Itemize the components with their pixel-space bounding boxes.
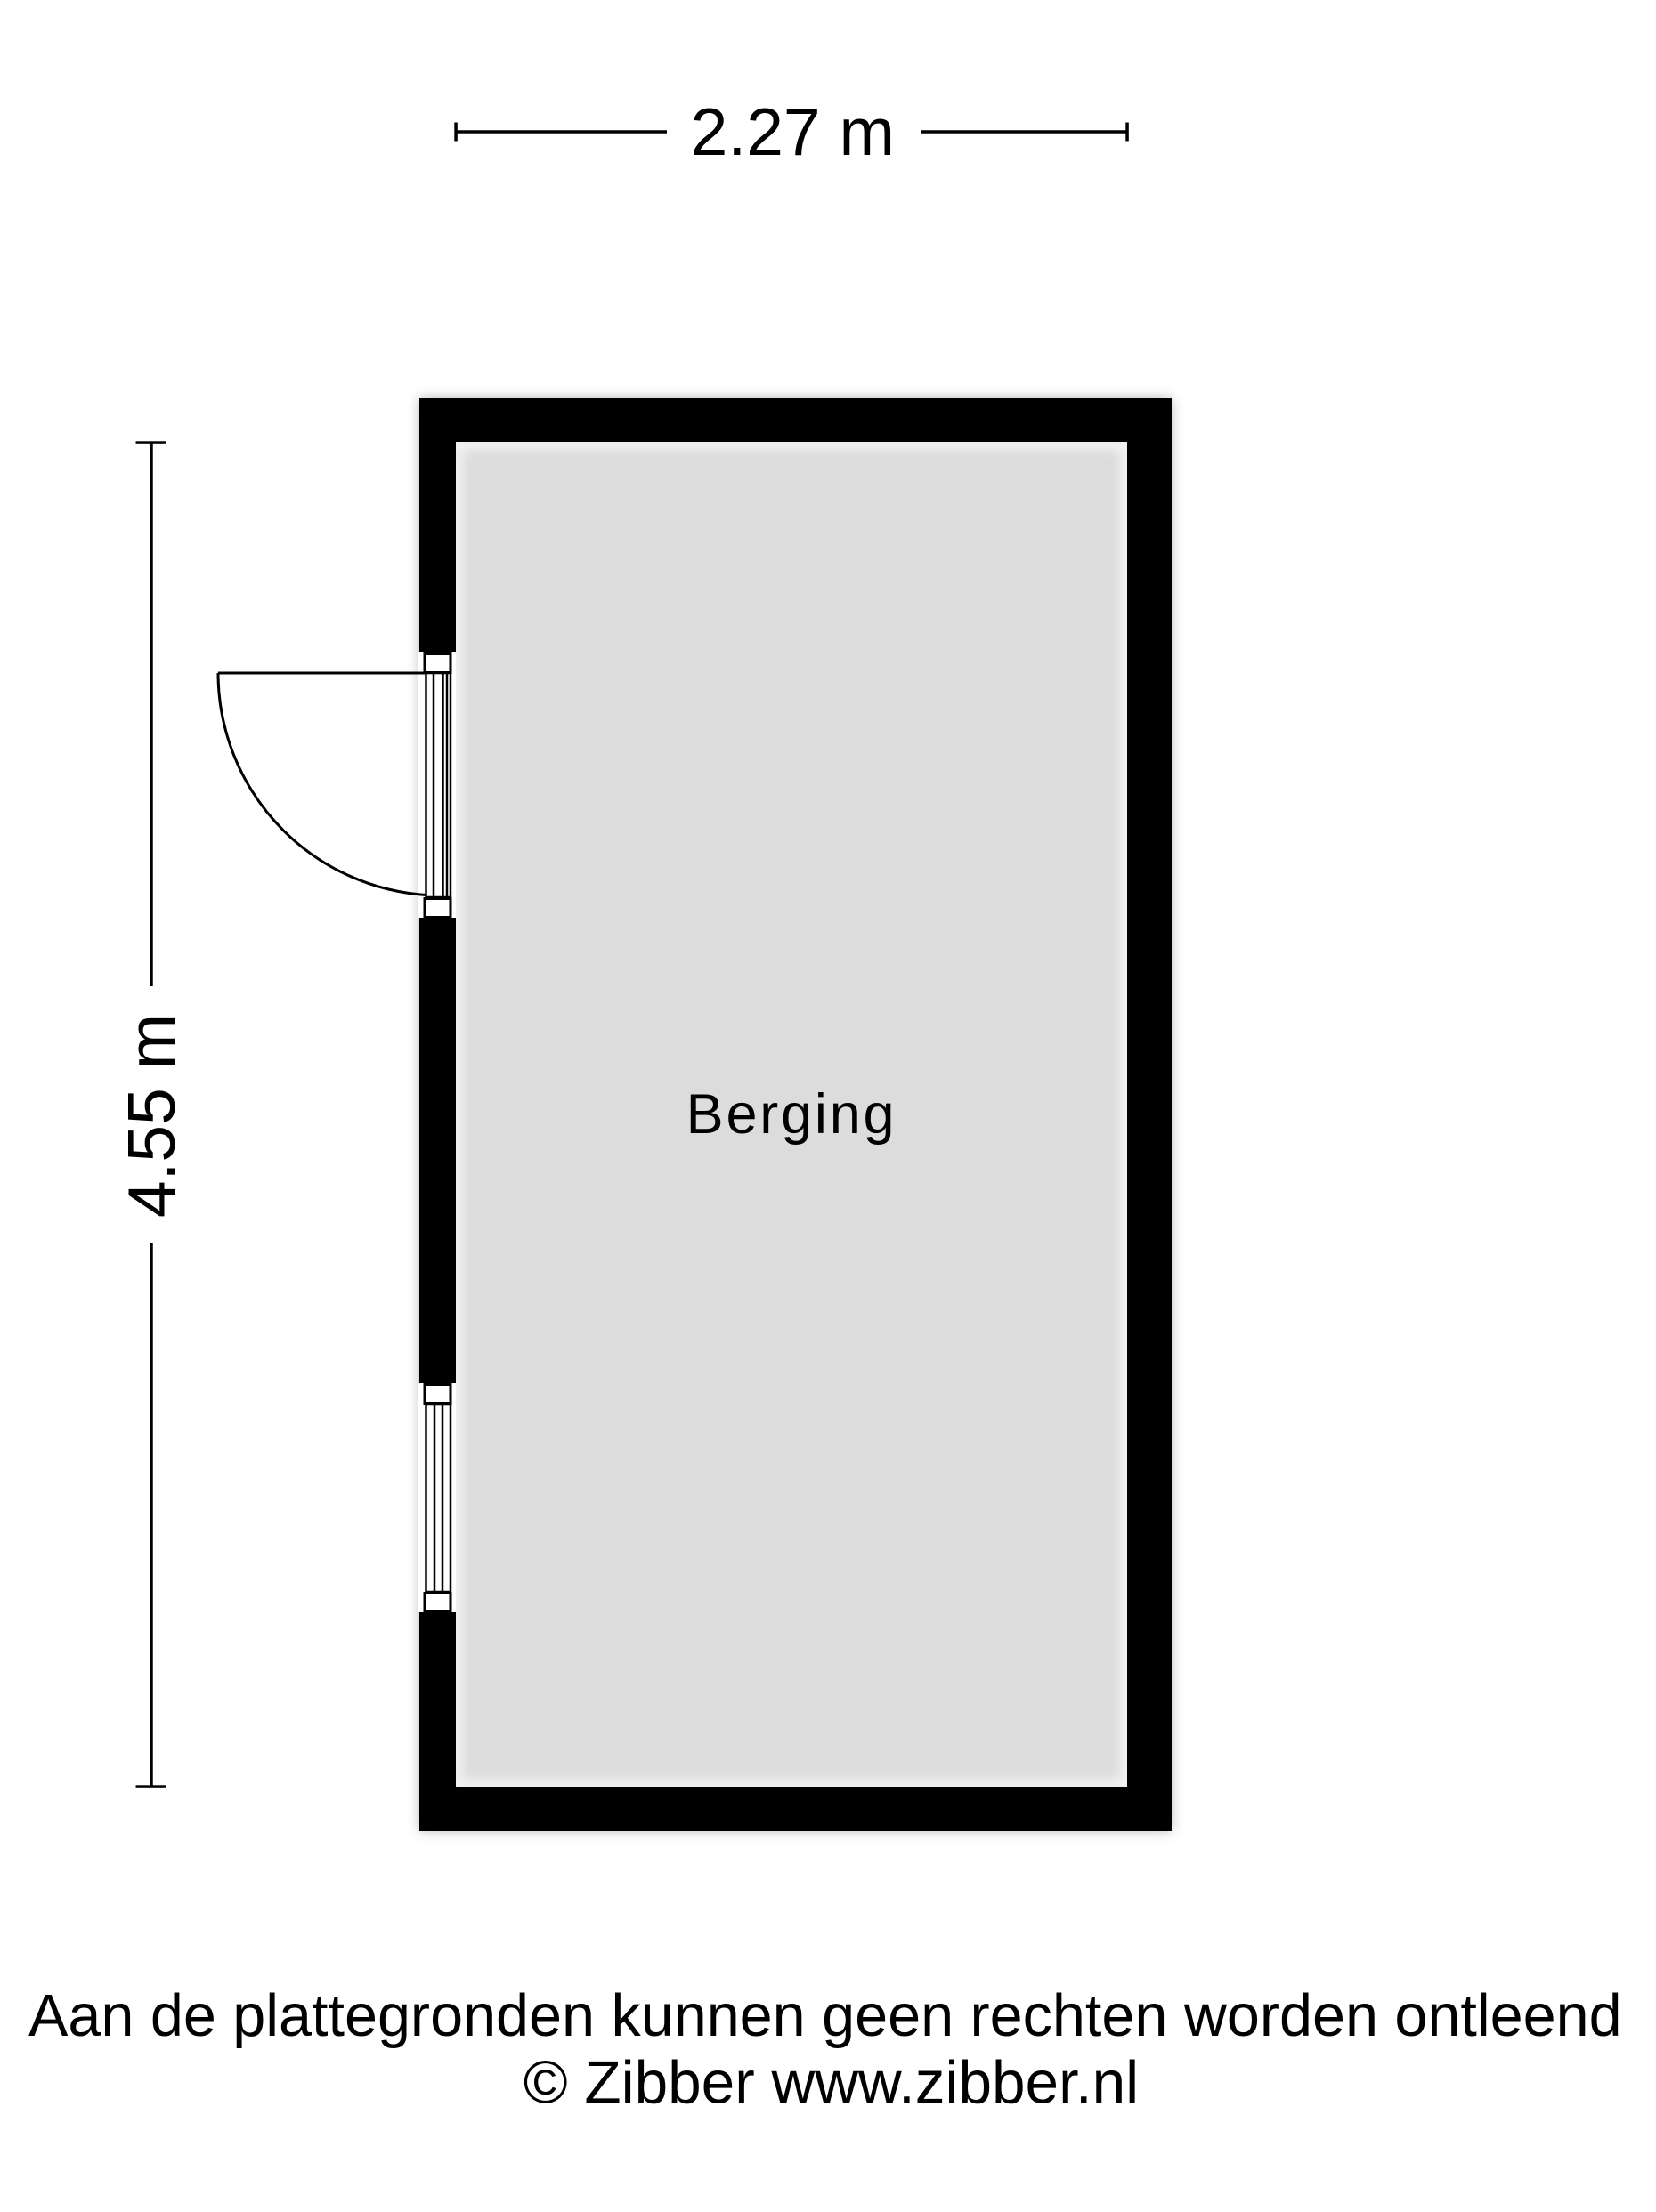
- svg-text:4.55 m: 4.55 m: [114, 1014, 189, 1218]
- svg-text:2.27 m: 2.27 m: [691, 94, 895, 169]
- svg-text:Aan de plattegronden kunnen ge: Aan de plattegronden kunnen geen rechten…: [28, 1983, 1622, 2049]
- svg-text:Berging: Berging: [686, 1083, 897, 1146]
- svg-text:© Zibber www.zibber.nl: © Zibber www.zibber.nl: [524, 2050, 1139, 2117]
